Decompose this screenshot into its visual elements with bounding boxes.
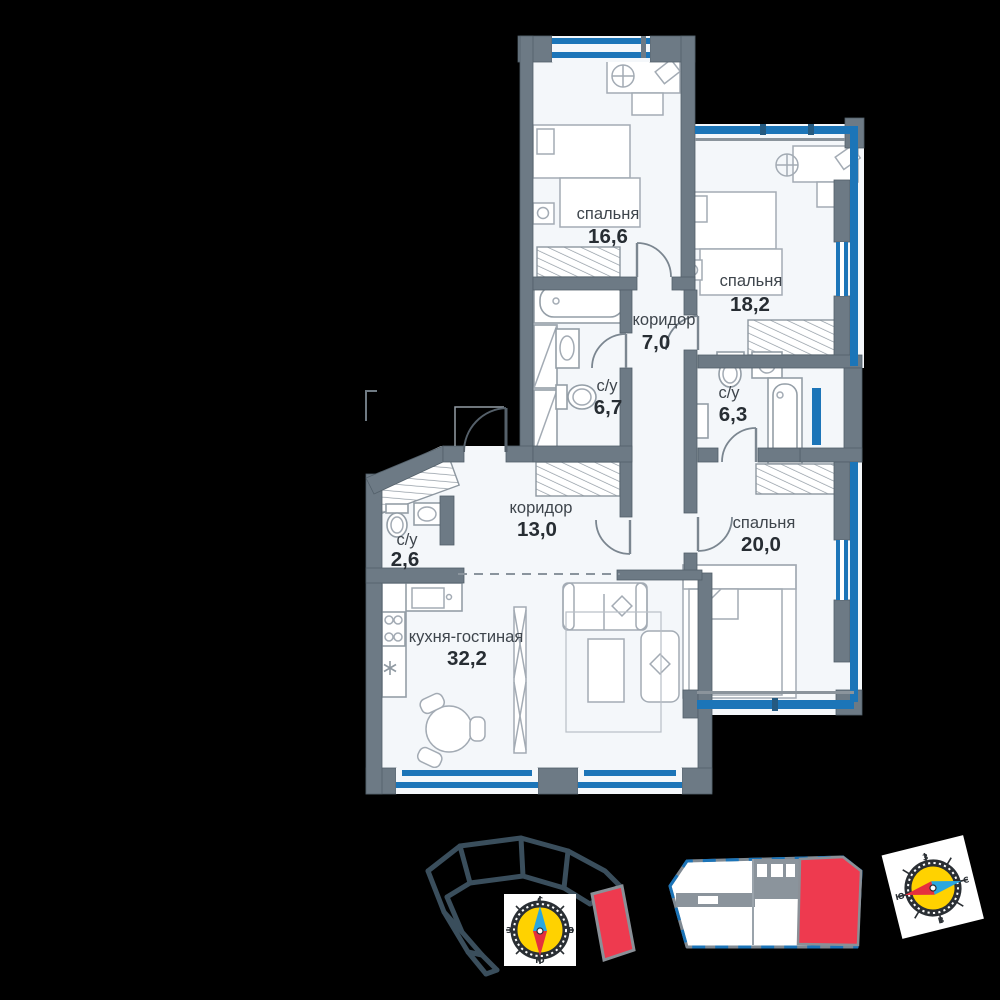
window-icon (578, 768, 682, 794)
compass-rotated-icon: З В С Ю (882, 835, 984, 939)
room-area: 6,7 (594, 396, 623, 419)
room-name: спальня (733, 514, 796, 532)
sofa-icon (563, 583, 647, 630)
room-area: 20,0 (741, 533, 781, 556)
window-icon (552, 36, 650, 62)
room-area: 16,6 (588, 225, 628, 248)
room-name: кухня-гостиная (409, 628, 524, 646)
sink-icon (556, 329, 579, 368)
compass-label-north: С (537, 896, 543, 905)
wardrobe-icon (536, 462, 620, 496)
sink-icon (414, 503, 441, 525)
floorplan-page: спальня 16,6 спальня 18,2 коридор 7,0 с/… (0, 0, 1000, 1000)
armchair-icon (641, 631, 679, 702)
room-name: спальня (720, 272, 783, 290)
room-area: 6,3 (719, 403, 748, 426)
compass-icon: С Ю З В (504, 894, 576, 966)
balcony-glazing-icon (695, 124, 850, 141)
stove-icon (382, 612, 405, 646)
room-name: с/у (596, 377, 618, 395)
compass-label-south: Ю (535, 956, 544, 965)
room-area: 2,6 (391, 548, 420, 571)
kitchen-sink-icon (404, 583, 462, 611)
floor-mini-plan (670, 857, 861, 947)
wardrobe-icon (748, 320, 840, 355)
room-name: коридор (633, 311, 696, 329)
window-icon (396, 768, 538, 794)
room-area: 32,2 (447, 647, 487, 670)
entrance-door-icon (464, 408, 506, 452)
balcony-glazing-icon (697, 691, 854, 711)
coffee-table-icon (588, 639, 624, 702)
room-area: 13,0 (517, 518, 557, 541)
room-area: 18,2 (730, 293, 770, 316)
wardrobe-icon (537, 247, 620, 277)
room-name: коридор (510, 499, 573, 517)
compass-label-west: З (506, 926, 512, 935)
lobby-outline (455, 407, 504, 446)
compass-label-east: В (568, 926, 574, 935)
room-name: спальня (577, 205, 640, 223)
apartment-plan: спальня 16,6 спальня 18,2 коридор 7,0 с/… (366, 36, 864, 794)
selected-unit-highlight (798, 857, 861, 945)
toilet-icon (556, 385, 596, 409)
neighbor-wall-outline (366, 391, 377, 421)
floor-plan-canvas: спальня 16,6 спальня 18,2 коридор 7,0 с/… (0, 0, 1000, 1000)
room-area: 7,0 (642, 331, 671, 354)
selected-section-highlight (592, 886, 634, 960)
cabinet-icon (534, 325, 557, 454)
room-name: с/у (396, 531, 418, 549)
room-name: с/у (718, 384, 740, 402)
wardrobe-icon (756, 464, 836, 494)
window-icon (812, 388, 821, 445)
